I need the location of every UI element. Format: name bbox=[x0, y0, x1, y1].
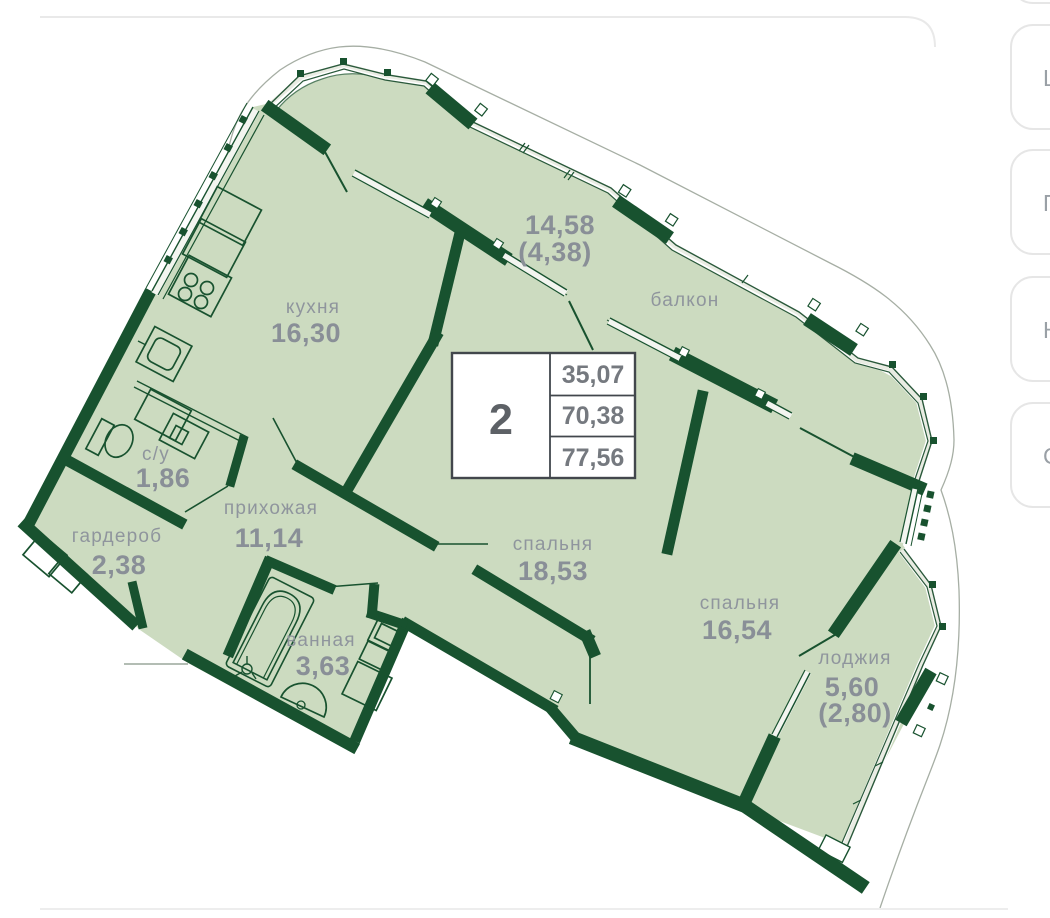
svg-text:3,63: 3,63 bbox=[296, 651, 351, 681]
svg-text:16,54: 16,54 bbox=[702, 615, 772, 645]
svg-text:спальня: спальня bbox=[513, 534, 594, 555]
svg-text:16,30: 16,30 bbox=[271, 318, 341, 348]
svg-text:Н: Н bbox=[1043, 317, 1050, 343]
svg-text:14,58: 14,58 bbox=[525, 210, 595, 240]
svg-text:77,56: 77,56 bbox=[562, 444, 625, 472]
svg-text:2: 2 bbox=[489, 396, 513, 444]
svg-text:18,53: 18,53 bbox=[518, 556, 588, 586]
svg-text:2,38: 2,38 bbox=[92, 550, 147, 580]
svg-text:прихожая: прихожая bbox=[224, 498, 318, 519]
svg-text:гардероб: гардероб bbox=[72, 526, 162, 547]
svg-text:С: С bbox=[1043, 443, 1050, 469]
svg-text:с/у: с/у bbox=[142, 444, 170, 465]
svg-text:1,86: 1,86 bbox=[136, 463, 191, 493]
svg-text:спальня: спальня bbox=[700, 593, 781, 614]
svg-text:лоджия: лоджия bbox=[818, 648, 891, 669]
svg-text:(2,80): (2,80) bbox=[818, 698, 892, 728]
svg-text:ванная: ванная bbox=[286, 630, 356, 651]
svg-text:Ш: Ш bbox=[1043, 65, 1050, 91]
svg-text:балкон: балкон bbox=[651, 290, 720, 311]
svg-text:кухня: кухня bbox=[286, 297, 340, 318]
svg-text:70,38: 70,38 bbox=[562, 402, 625, 430]
svg-text:11,14: 11,14 bbox=[235, 523, 304, 553]
svg-text:П: П bbox=[1043, 190, 1050, 216]
svg-text:35,07: 35,07 bbox=[562, 361, 625, 389]
svg-text:(4,38): (4,38) bbox=[518, 237, 592, 267]
